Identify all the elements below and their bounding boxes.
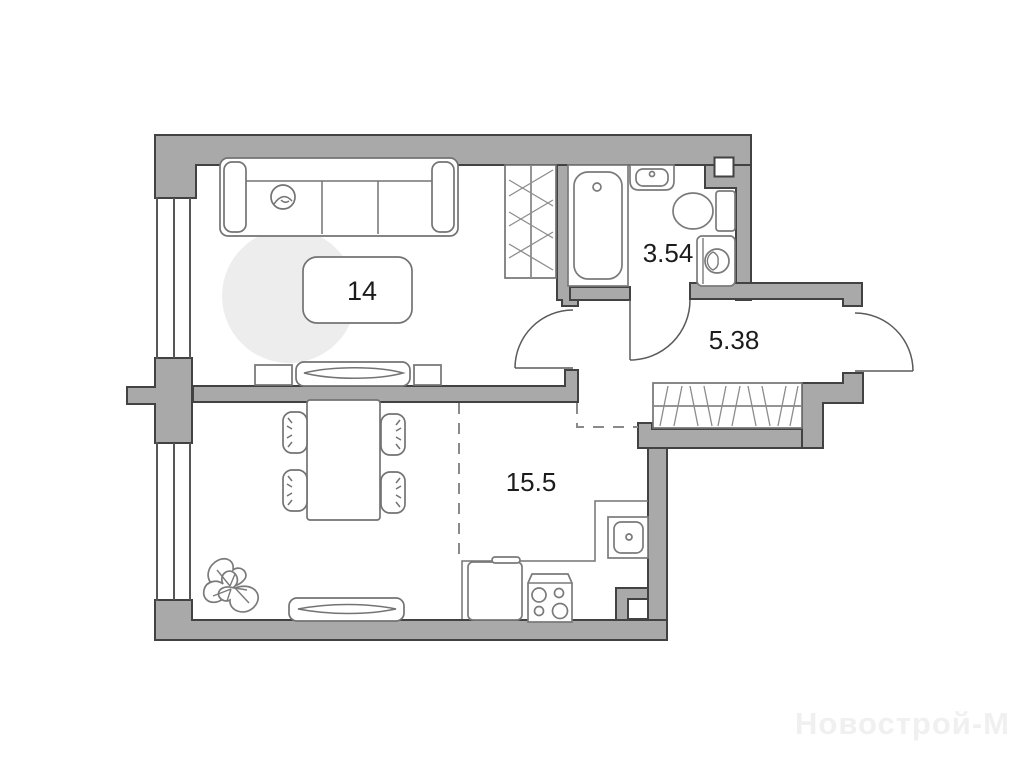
kitchen-sink — [608, 517, 648, 558]
wall-entrance — [802, 373, 863, 448]
chair — [283, 412, 307, 453]
plant — [204, 559, 258, 612]
wall-kitchen-right — [648, 447, 667, 620]
window-kitchen-dining — [157, 442, 190, 601]
bathroom-sink — [630, 165, 674, 190]
room-label-kitchen: 15.5 — [506, 467, 557, 497]
chair — [381, 472, 405, 513]
watermark: Новострой-М — [795, 706, 1010, 742]
wall-left-pier — [127, 358, 192, 443]
door-living-room — [515, 310, 573, 368]
room-label-living: 14 — [347, 276, 377, 306]
room-label-bathroom: 3.54 — [643, 238, 694, 268]
door-bathroom — [630, 300, 690, 360]
vent-shaft-kitchen — [628, 599, 648, 619]
vent-shaft-bathroom — [715, 158, 734, 177]
sofa — [220, 158, 458, 236]
washing-machine — [697, 236, 735, 286]
bathtub — [568, 165, 628, 286]
hallway-zone-dash — [577, 403, 638, 427]
dining-table — [307, 400, 380, 520]
wardrobe-hallway — [653, 383, 802, 428]
tv-stand-living — [255, 362, 441, 386]
wardrobe-living — [505, 165, 556, 278]
chair — [381, 414, 405, 455]
wall-bathroom-bottom-left — [570, 287, 630, 300]
fridge — [468, 557, 522, 620]
floor-plan: 14 3.54 5.38 15.5 Новострой-М — [0, 0, 1024, 768]
door-entrance — [855, 313, 913, 371]
room-label-hallway: 5.38 — [709, 325, 760, 355]
floor-plan-drawing: 14 3.54 5.38 15.5 — [0, 0, 1024, 768]
chair — [283, 470, 307, 511]
toilet — [673, 191, 735, 231]
stove — [528, 574, 572, 622]
tv-stand-dining — [289, 598, 404, 621]
window-living-room — [157, 197, 190, 359]
